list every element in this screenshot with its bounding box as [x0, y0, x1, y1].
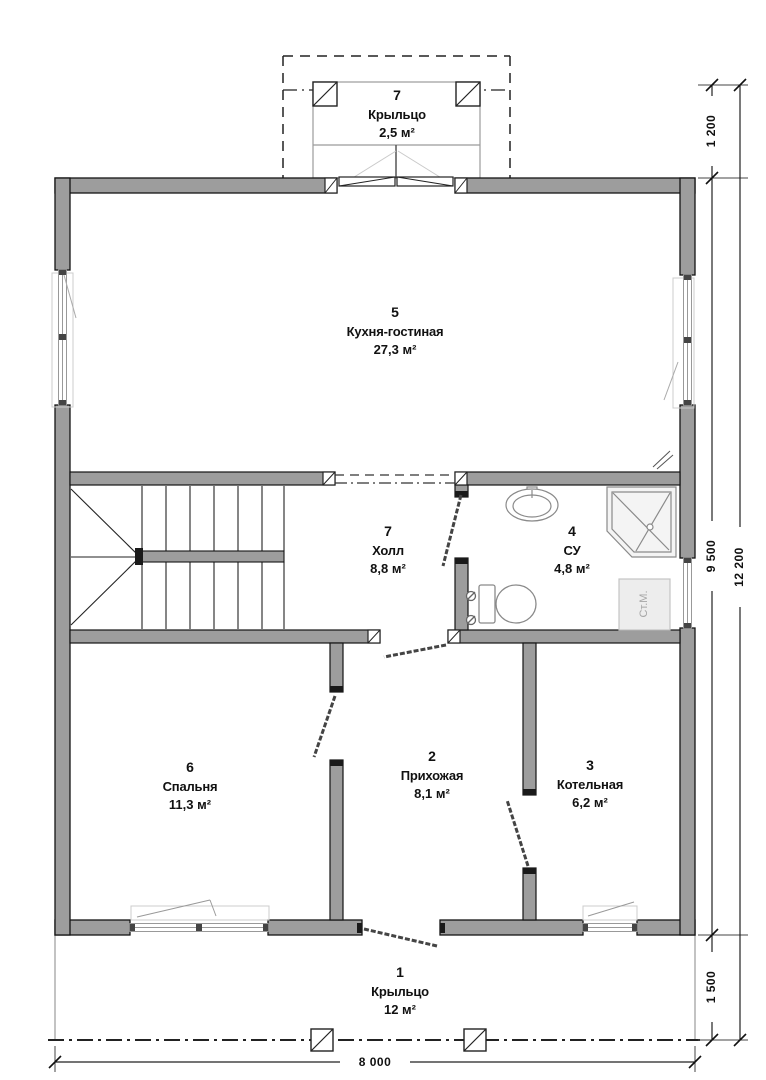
- toilet: [467, 585, 537, 625]
- dimension-width: 8 000: [340, 1054, 410, 1070]
- dimension-house-depth: 9 500: [703, 521, 719, 591]
- window-boiler: [583, 902, 637, 932]
- top-porch-outline: [283, 56, 510, 178]
- wall-end-caps: [323, 178, 536, 933]
- stairs: [71, 486, 284, 629]
- window-bathroom-right: [684, 558, 692, 628]
- boiler-door: [507, 800, 528, 866]
- bottom-porch-outline: [48, 935, 700, 1051]
- open-passage: [335, 475, 455, 483]
- dimension-total-depth: 12 200: [731, 527, 747, 607]
- washing-machine-label: Ст.М.: [637, 578, 651, 630]
- doors: [314, 495, 528, 946]
- bedroom-door: [314, 696, 335, 757]
- bathroom-door: [443, 495, 461, 566]
- floor-plan-drawing: [0, 0, 766, 1080]
- window-bedroom: [130, 900, 269, 932]
- entrance-door: [364, 929, 437, 946]
- dimension-porch-depth: 1 200: [703, 96, 719, 166]
- shower-cabin: [607, 487, 676, 557]
- interior-walls: [70, 472, 680, 920]
- dimension-terrace-depth: 1 500: [703, 952, 719, 1022]
- kitchen-vent-mark: [653, 451, 673, 469]
- sink: [506, 487, 558, 521]
- hall-entry-door: [384, 645, 446, 657]
- window-kitchen-right: [664, 275, 694, 408]
- floor-plan: 7 Крыльцо 2,5 м² 5 Кухня-гостиная 27,3 м…: [0, 0, 766, 1080]
- window-kitchen-left: [52, 270, 76, 407]
